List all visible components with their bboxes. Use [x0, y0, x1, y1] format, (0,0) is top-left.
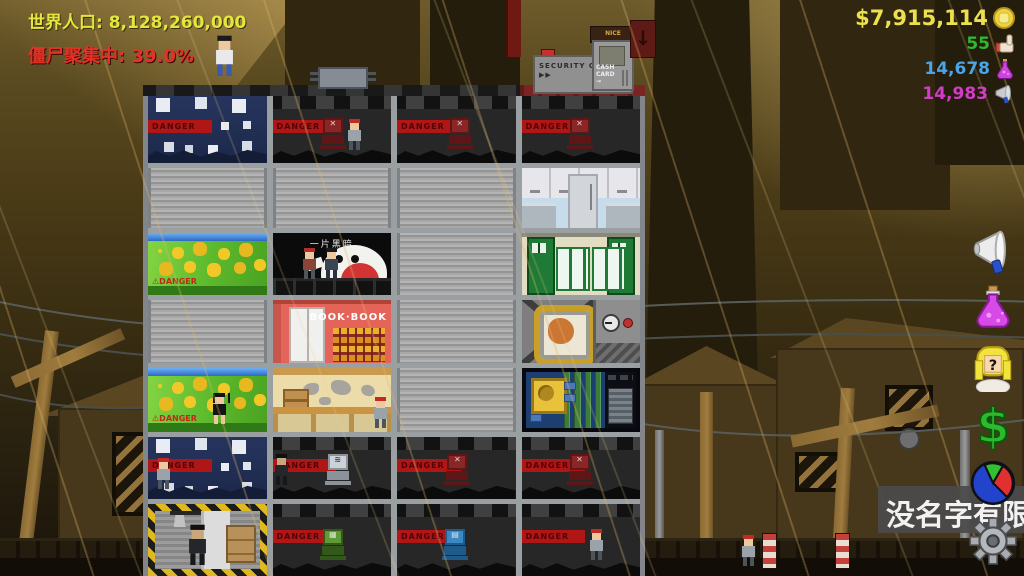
server-rack — [605, 372, 636, 428]
room-kitchen[interactable] — [522, 168, 641, 228]
cooling-fan — [531, 378, 567, 414]
money-value: $7,915,114 — [855, 6, 988, 30]
svg-text:?: ? — [989, 357, 997, 374]
tower-building: DANGER DANGER ✕ DANGER ✕ DANGER ✕ — [143, 85, 645, 576]
worker-woman[interactable] — [213, 396, 226, 424]
red-banner — [506, 0, 521, 57]
farm-danger-label: ⚠DANGER — [152, 414, 197, 423]
room-vacant[interactable] — [397, 368, 516, 432]
farm-danger-label: ⚠DANGER — [152, 277, 197, 286]
room-vacant[interactable] — [148, 168, 267, 228]
megaphone-button[interactable] — [968, 226, 1018, 276]
ram-stick — [595, 372, 601, 428]
building-grid: DANGER DANGER ✕ DANGER ✕ DANGER ✕ — [143, 96, 645, 576]
sidebar-menu: ? $ — [968, 226, 1018, 566]
indicator-light — [623, 318, 633, 328]
survivor[interactable] — [348, 122, 361, 150]
lobby-guard[interactable] — [189, 529, 206, 565]
coin-icon — [992, 6, 1016, 30]
guard[interactable] — [275, 457, 288, 485]
world-population-label: 世界人口: 8,128,260,000 — [28, 8, 246, 33]
likes-value: 55 — [966, 34, 990, 54]
window — [592, 247, 626, 291]
cash-card-machine[interactable]: CASH CARD → — [592, 40, 634, 91]
room-vacant[interactable] — [397, 233, 516, 295]
green-door — [527, 237, 555, 295]
room-vacant[interactable] — [397, 300, 516, 363]
room-vacant[interactable] — [273, 168, 392, 228]
room-bookstore[interactable]: BOOK·BOOK — [273, 300, 392, 363]
window — [556, 247, 590, 291]
guard[interactable] — [157, 461, 170, 489]
barrier-post — [835, 533, 850, 569]
room-dormitory[interactable] — [522, 233, 641, 295]
flask-icon — [994, 58, 1016, 80]
room-guard[interactable]: DANGER ≋ — [273, 437, 392, 499]
room-guard[interactable]: DANGER ✕ — [397, 437, 516, 499]
influence-value: 14,983 — [922, 84, 988, 104]
megaphone-small-icon — [992, 83, 1016, 105]
gun-rack — [154, 102, 156, 104]
room-dark-cafe[interactable]: 一片黑暗 — [273, 233, 392, 295]
room-corridor[interactable]: DANGER — [522, 504, 641, 576]
red-robot-turret[interactable]: ✕ — [444, 454, 470, 485]
silver-turret[interactable]: ≋ — [325, 454, 351, 485]
room-guard[interactable]: DANGER ✕ — [522, 437, 641, 499]
green-turret[interactable]: ▦ — [320, 529, 346, 560]
room-incubator[interactable] — [522, 300, 641, 363]
arrow-sign: ↓ — [630, 20, 656, 58]
room-guard[interactable]: DANGER ✕ — [273, 96, 392, 163]
danger-tape: DANGER — [148, 120, 212, 133]
advisor-button[interactable]: ? — [968, 342, 1018, 392]
room-armory[interactable]: DANGER — [148, 437, 267, 499]
barrier-post — [762, 533, 777, 569]
bookstore-sign: BOOK·BOOK — [309, 312, 387, 323]
roof-gun-turret[interactable] — [318, 67, 368, 89]
room-weapon-shop[interactable] — [273, 368, 392, 432]
gun-rack — [154, 443, 156, 445]
science-value: 14,678 — [924, 59, 990, 79]
statistics-button[interactable] — [968, 458, 1018, 508]
gauge — [602, 314, 620, 332]
shopkeeper[interactable] — [374, 400, 387, 428]
crops — [158, 384, 162, 388]
blue-turret[interactable]: ▤ — [442, 529, 468, 560]
game-screen: DANGER DANGER ✕ DANGER ✕ DANGER ✕ — [0, 0, 1024, 576]
room-server[interactable] — [522, 368, 641, 432]
ram-stick — [585, 372, 591, 428]
incubator-pod — [534, 305, 596, 363]
fridge — [568, 174, 598, 228]
atm-screen — [599, 46, 625, 66]
svg-text:$: $ — [976, 400, 1009, 450]
danger-tape: DANGER — [522, 530, 586, 543]
room-vacant[interactable] — [148, 300, 267, 363]
room-armory[interactable]: DANGER — [148, 96, 267, 163]
visitor[interactable] — [303, 251, 316, 279]
survivor[interactable] — [590, 532, 603, 560]
room-guard[interactable]: DANGER ▤ — [397, 504, 516, 576]
zombie-gathering-label: 僵尸聚集中: 39.0% — [28, 42, 246, 68]
room-farm[interactable]: ⚠DANGER — [148, 368, 267, 432]
settings-button[interactable] — [968, 516, 1018, 566]
crates — [226, 525, 256, 563]
red-robot-turret[interactable]: ✕ — [447, 118, 473, 149]
book-shelf — [333, 328, 385, 362]
potion-button[interactable] — [968, 284, 1018, 334]
finance-button[interactable]: $ — [968, 400, 1018, 450]
room-guard[interactable]: DANGER ▦ — [273, 504, 392, 576]
crops — [158, 249, 162, 253]
red-robot-turret[interactable]: ✕ — [567, 454, 593, 485]
atm-label: CASH CARD → — [596, 64, 620, 85]
room-guard[interactable]: DANGER ✕ — [397, 96, 516, 163]
room-lobby[interactable] — [148, 504, 267, 576]
visitor[interactable] — [325, 251, 338, 279]
red-robot-turret[interactable]: ✕ — [320, 118, 346, 149]
thumbs-up-icon — [994, 33, 1016, 55]
room-farm[interactable]: ⚠DANGER — [148, 233, 267, 295]
survivor-outside[interactable] — [742, 538, 755, 566]
room-guard[interactable]: DANGER ✕ — [522, 96, 641, 163]
room-vacant[interactable] — [397, 168, 516, 228]
red-robot-turret[interactable]: ✕ — [567, 118, 593, 149]
